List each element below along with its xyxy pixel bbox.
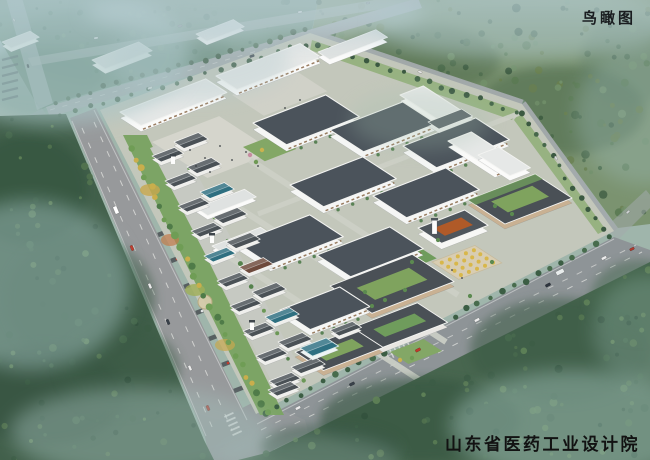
aerial-rendering: 鸟瞰图 山东省医药工业设计院 [0, 0, 650, 460]
view-type-label: 鸟瞰图 [582, 7, 636, 28]
birdseye-scene-canvas [0, 0, 650, 460]
design-institute-credit: 山东省医药工业设计院 [445, 430, 640, 455]
